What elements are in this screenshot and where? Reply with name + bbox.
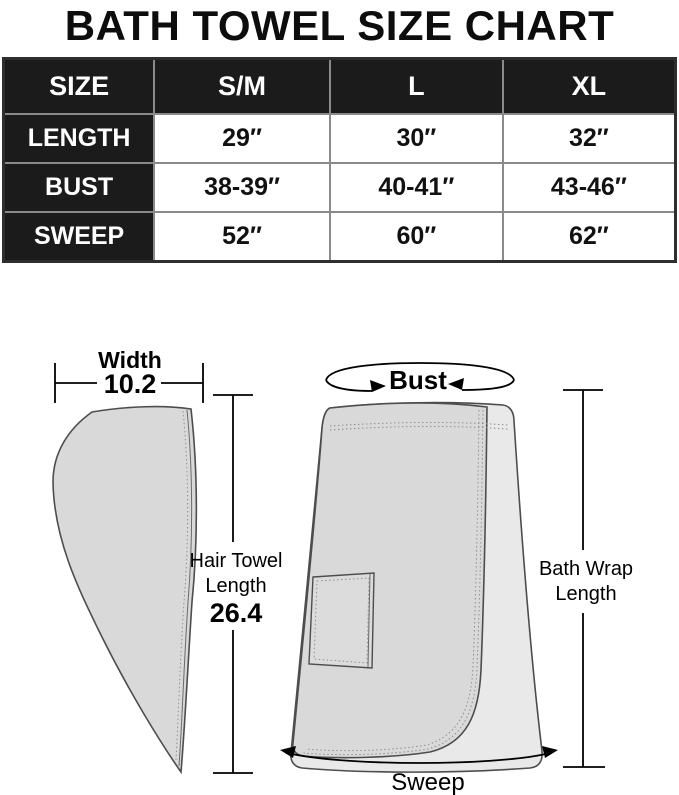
row-label-sweep: SWEEP bbox=[4, 212, 155, 262]
sweep-l: 60″ bbox=[330, 212, 503, 262]
bust-l: 40-41″ bbox=[330, 163, 503, 212]
header-sm: S/M bbox=[154, 59, 330, 115]
row-label-bust: BUST bbox=[4, 163, 155, 212]
table-row-sweep: SWEEP 52″ 60″ 62″ bbox=[4, 212, 676, 262]
header-l: L bbox=[330, 59, 503, 115]
bust-annotation: Bust bbox=[326, 363, 514, 395]
row-label-length: LENGTH bbox=[4, 114, 155, 163]
bust-ellipse-lower-right-arc bbox=[462, 380, 514, 390]
hair-towel-length-label-2: Length bbox=[205, 575, 266, 597]
bust-sm: 38-39″ bbox=[154, 163, 330, 212]
header-xl: XL bbox=[503, 59, 676, 115]
sweep-sm: 52″ bbox=[154, 212, 330, 262]
table-row-length: LENGTH 29″ 30″ 32″ bbox=[4, 114, 676, 163]
hair-towel-length-label-1: Hair Towel bbox=[190, 550, 283, 572]
sweep-label: Sweep bbox=[391, 769, 464, 795]
hair-towel-length-value: 26.4 bbox=[210, 598, 263, 628]
header-size: SIZE bbox=[4, 59, 155, 115]
towel-diagram: Width 10.2 Hair Towel Length 26.4 bbox=[0, 330, 679, 795]
table-row-bust: BUST 38-39″ 40-41″ 43-46″ bbox=[4, 163, 676, 212]
bust-ellipse-lower-left-arc bbox=[326, 380, 372, 391]
size-chart-table: SIZE S/M L XL LENGTH 29″ 30″ 32″ BUST 38… bbox=[2, 57, 677, 263]
width-value: 10.2 bbox=[104, 369, 157, 399]
pocket-outline bbox=[309, 573, 374, 668]
sweep-arrow-right bbox=[542, 746, 558, 758]
length-l: 30″ bbox=[330, 114, 503, 163]
bath-wrap-pocket bbox=[309, 573, 374, 668]
bust-arrow-left bbox=[370, 380, 386, 392]
bust-xl: 43-46″ bbox=[503, 163, 676, 212]
bust-arrow-right bbox=[448, 378, 464, 390]
length-xl: 32″ bbox=[503, 114, 676, 163]
hair-towel-shape bbox=[53, 407, 196, 772]
bath-wrap-illustration bbox=[291, 403, 542, 773]
bust-label: Bust bbox=[389, 365, 447, 395]
bath-wrap-length-label-1: Bath Wrap bbox=[539, 558, 633, 580]
hair-towel-illustration bbox=[53, 407, 196, 772]
bath-towel-size-chart: BATH TOWEL SIZE CHART SIZE S/M L XL LENG… bbox=[0, 0, 679, 795]
table-header-row: SIZE S/M L XL bbox=[4, 59, 676, 115]
towel-diagram-svg: Width 10.2 Hair Towel Length 26.4 bbox=[0, 330, 679, 795]
page-title: BATH TOWEL SIZE CHART bbox=[0, 0, 679, 52]
length-sm: 29″ bbox=[154, 114, 330, 163]
sweep-xl: 62″ bbox=[503, 212, 676, 262]
bath-wrap-length-label-2: Length bbox=[555, 583, 616, 605]
